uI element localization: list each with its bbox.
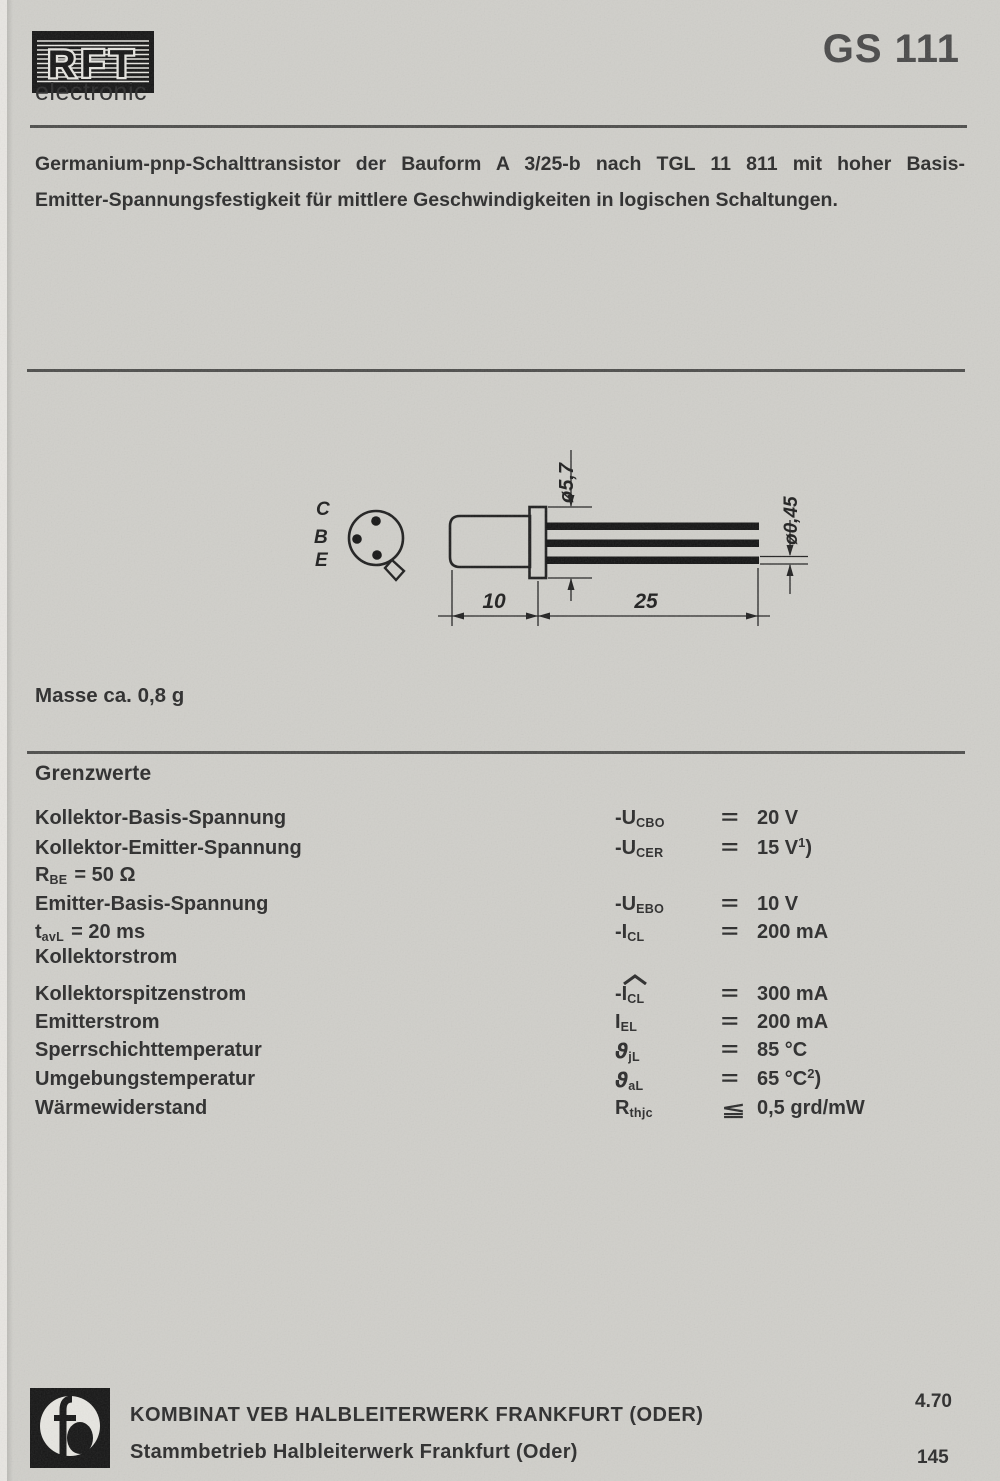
limit-relation: =: [721, 921, 739, 944]
description: Germanium-pnp-Schalttransistor der Baufo…: [35, 146, 965, 218]
limits-title: Grenzwerte: [35, 762, 151, 786]
page-number: 145: [917, 1447, 949, 1469]
limit-symbol: ϑaL: [615, 1068, 643, 1093]
pin-label-c: C: [316, 499, 330, 520]
pin-e: [372, 550, 382, 560]
scan-edge: [0, 0, 7, 1481]
brand-subtitle: electronic: [35, 78, 147, 107]
limit-value: 200 mA: [757, 1011, 828, 1034]
limit-value: 300 mA: [757, 983, 828, 1006]
limit-symbol: -UCER: [615, 837, 663, 860]
pin-label-e: E: [315, 550, 329, 571]
limit-label: Sperrschichttemperatur: [35, 1039, 262, 1062]
part-number: GS 111: [823, 27, 960, 72]
paper-texture: [0, 0, 1000, 1481]
limit-row-collector-base-voltage: Kollektor-Basis-Spannung -UCBO = 20 V: [35, 807, 965, 837]
divider-drawing: [27, 369, 965, 372]
datasheet-page: RFT electronic GS 111 Germanium-pnp-Scha…: [0, 0, 1000, 1481]
limit-relation: ≦: [721, 1097, 746, 1122]
mass-note: Masse ca. 0,8 g: [35, 684, 184, 708]
pinout-view: C B E: [314, 499, 404, 580]
dim-label-lead-diameter: ø0,45: [781, 496, 802, 545]
side-view: [450, 507, 759, 578]
limit-label: Emitterstrom: [35, 1011, 159, 1034]
limit-symbol: -ICL: [615, 921, 644, 944]
pin-label-b: B: [314, 527, 328, 548]
flange: [530, 507, 547, 578]
limit-relation: =: [721, 893, 739, 916]
limit-relation: =: [721, 1011, 739, 1034]
dim-label-body-length: 10: [482, 590, 506, 613]
limit-row-emitter-base-voltage: Emitter-Basis-Spannung -UEBO = 10 V: [35, 893, 965, 923]
limit-value: 20 V: [757, 807, 798, 830]
limit-symbol: -UCBO: [615, 807, 665, 830]
pin-c: [371, 516, 381, 526]
lead-middle: [546, 540, 759, 548]
limit-relation: =: [721, 837, 739, 860]
limit-value: 0,5 grd/mW: [757, 1097, 865, 1120]
limit-symbol: -ICL: [615, 983, 644, 1006]
limit-row-collector-current: Kollektorstrom: [35, 946, 965, 976]
limit-label: Kollektor-Basis-Spannung: [35, 807, 286, 830]
description-line2: Emitter-Spannungsfestigkeit für mittlere…: [35, 182, 965, 218]
limit-symbol: ϑjL: [615, 1039, 640, 1064]
limit-label: tavL= 20 ms: [35, 921, 145, 944]
peak-hat-icon: [622, 974, 648, 985]
footer-company: KOMBINAT VEB HALBLEITERWERK FRANKFURT (O…: [130, 1404, 703, 1427]
limit-row-ambient-temperature: Umgebungstemperatur ϑaL = 65 °C2): [35, 1068, 965, 1098]
limit-label: Kollektorspitzenstrom: [35, 983, 246, 1006]
dim-label-flange-diameter: ø5,7: [556, 462, 578, 503]
limit-label: Emitter-Basis-Spannung: [35, 893, 268, 916]
lead-top: [546, 523, 759, 531]
divider-top: [30, 125, 967, 128]
limit-label: Kollektorstrom: [35, 946, 177, 969]
limit-relation: =: [721, 1068, 739, 1091]
limit-value: 200 mA: [757, 921, 828, 944]
limit-relation: =: [721, 807, 739, 830]
limit-row-thermal-resistance: Wärmewiderstand Rthjc ≦ 0,5 grd/mW: [35, 1097, 965, 1127]
limit-value: 10 V: [757, 893, 798, 916]
limit-label: RBE= 50 Ω: [35, 864, 136, 887]
hfo-logo: [30, 1388, 110, 1468]
limit-symbol: IEL: [615, 1011, 637, 1034]
limit-row-rbe-condition: RBE= 50 Ω: [35, 864, 965, 894]
limit-label: Kollektor-Emitter-Spannung: [35, 837, 302, 860]
limit-value: 65 °C2): [757, 1068, 821, 1091]
limit-symbol: -UEBO: [615, 893, 664, 916]
package-drawing: C B E ø5,7 ø0,45: [280, 428, 825, 648]
divider-limits: [27, 751, 965, 754]
scan-crease: [7, 0, 13, 1481]
limit-symbol: Rthjc: [615, 1097, 653, 1120]
limit-relation: =: [721, 983, 739, 1006]
limit-row-junction-temperature: Sperrschichttemperatur ϑjL = 85 °C: [35, 1039, 965, 1069]
dim-label-lead-length: 25: [633, 590, 658, 613]
limit-label: Umgebungstemperatur: [35, 1068, 255, 1091]
description-line1: Germanium-pnp-Schalttransistor der Baufo…: [35, 146, 965, 182]
transistor-body: [450, 516, 530, 567]
limit-value: 85 °C: [757, 1039, 807, 1062]
index-tab: [385, 560, 404, 580]
lead-bottom: [546, 557, 759, 565]
footer-plant: Stammbetrieb Halbleiterwerk Frankfurt (O…: [130, 1441, 578, 1464]
pin-b: [352, 534, 362, 544]
limit-label: Wärmewiderstand: [35, 1097, 207, 1120]
limit-row-collector-peak-current: Kollektorspitzenstrom -ICL = 300 mA: [35, 983, 965, 1013]
limit-row-collector-emitter-voltage: Kollektor-Emitter-Spannung -UCER = 15 V1…: [35, 837, 965, 867]
limit-row-emitter-current: Emitterstrom IEL = 200 mA: [35, 1011, 965, 1041]
limit-relation: =: [721, 1039, 739, 1062]
limit-value: 15 V1): [757, 837, 812, 860]
date-code: 4.70: [915, 1391, 952, 1413]
